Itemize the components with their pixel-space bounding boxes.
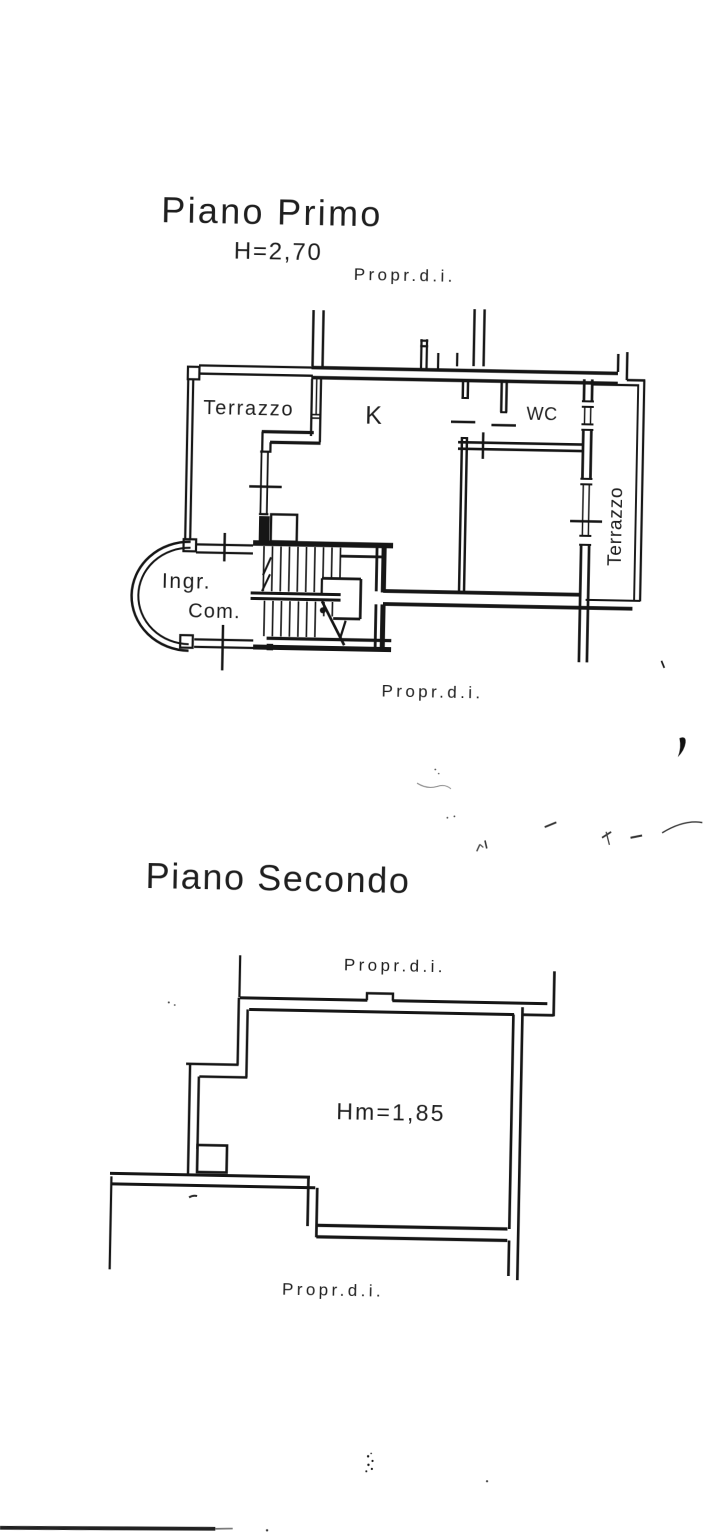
svg-text:Propr.d.i.: Propr.d.i.: [381, 681, 483, 702]
svg-text:H=2,70: H=2,70: [234, 238, 323, 267]
svg-text:Propr.d.i.: Propr.d.i.: [354, 265, 456, 286]
svg-text:Piano Primo: Piano Primo: [161, 189, 383, 234]
svg-text:Hm=1,85: Hm=1,85: [336, 1098, 446, 1126]
svg-text:Propr.d.i.: Propr.d.i.: [282, 1280, 384, 1301]
svg-text:K: K: [365, 402, 383, 430]
svg-text:Terrazzo: Terrazzo: [203, 397, 294, 421]
svg-text:Propr.d.i.: Propr.d.i.: [344, 955, 446, 976]
svg-text:WC: WC: [526, 404, 558, 425]
svg-text:Com.: Com.: [188, 600, 241, 623]
svg-text:Ingr.: Ingr.: [162, 570, 212, 594]
svg-text:Terrazzo: Terrazzo: [605, 486, 628, 566]
svg-text:Piano Secondo: Piano Secondo: [145, 855, 411, 901]
